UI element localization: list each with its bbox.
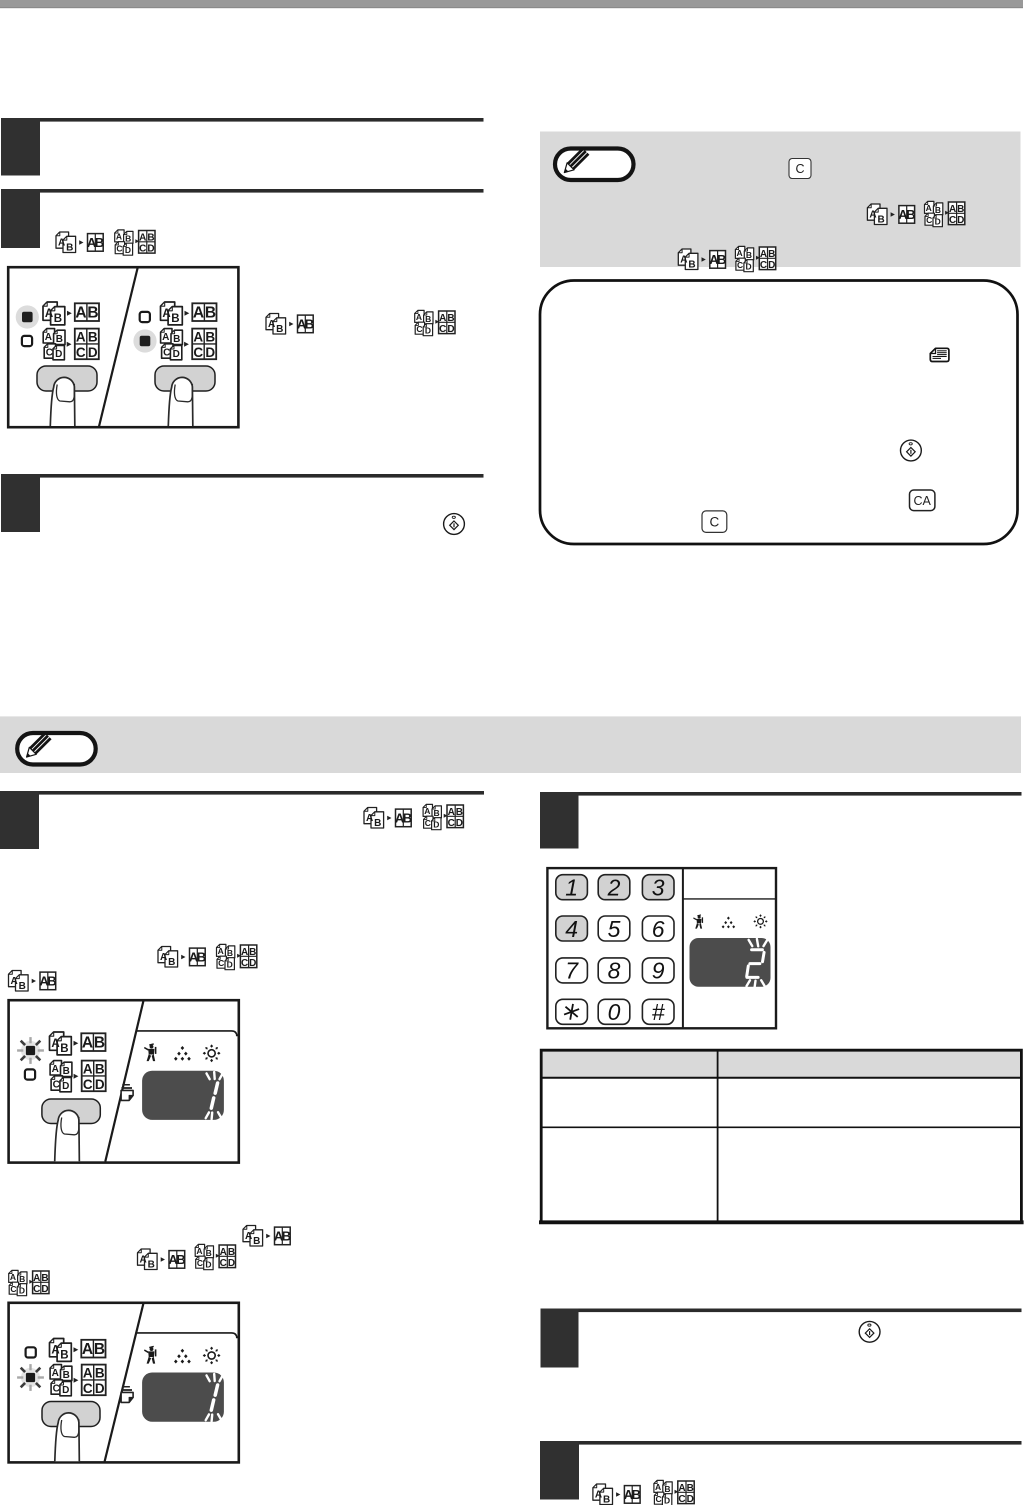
svg-text:7: 7 — [565, 958, 579, 984]
svg-text:6: 6 — [652, 916, 665, 942]
svg-text:8: 8 — [608, 958, 621, 984]
svg-text:4: 4 — [565, 916, 578, 942]
svg-text:#: # — [652, 999, 666, 1025]
svg-text:1: 1 — [565, 875, 578, 901]
svg-text:3: 3 — [652, 875, 665, 901]
svg-text:2: 2 — [607, 875, 621, 901]
svg-text:9: 9 — [652, 958, 665, 984]
svg-text:0: 0 — [608, 999, 621, 1025]
svg-text:5: 5 — [608, 916, 621, 942]
